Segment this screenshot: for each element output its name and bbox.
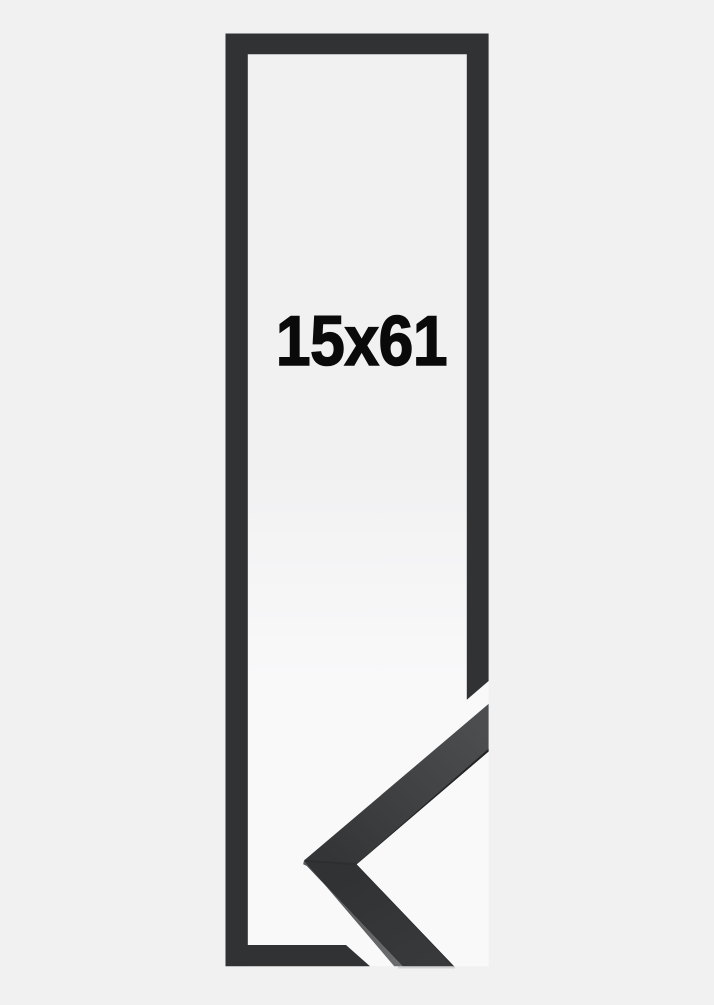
svg-text:15x61: 15x61 [276, 303, 447, 381]
